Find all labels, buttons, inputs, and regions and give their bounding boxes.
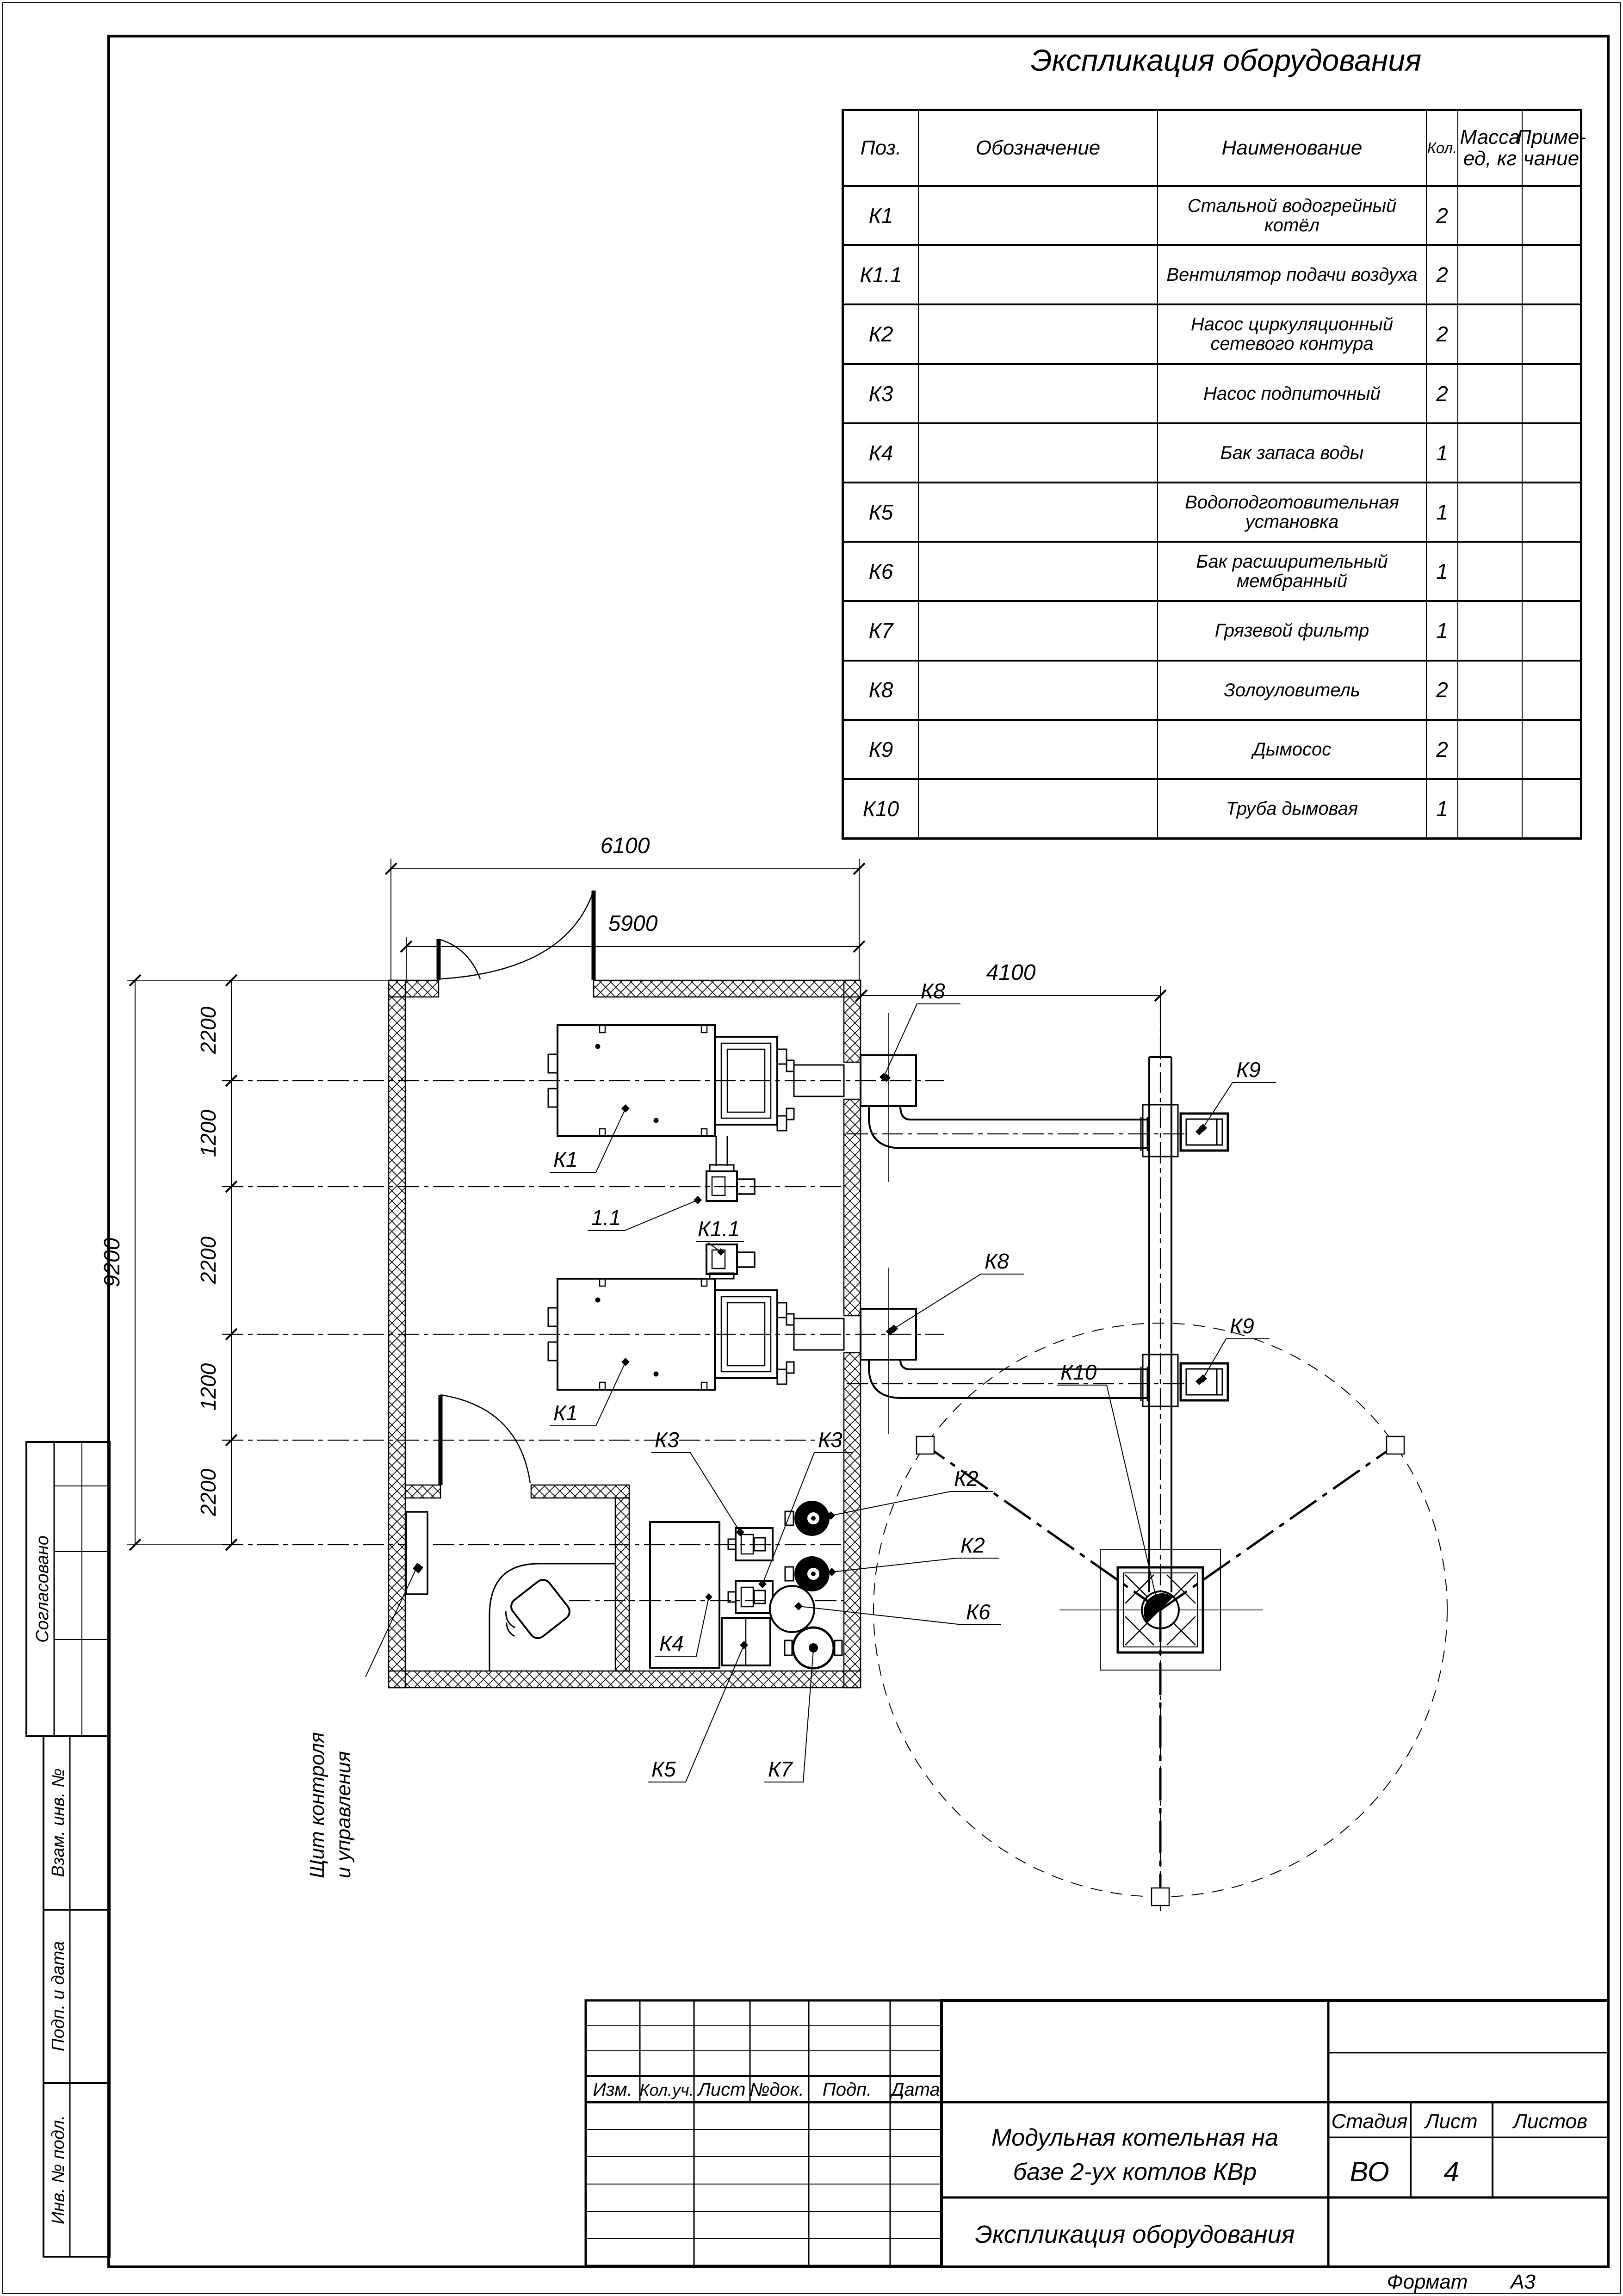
doc-title: Экспликация оборудования bbox=[975, 2221, 1295, 2248]
label-k11: К1.1 bbox=[698, 1217, 740, 1241]
label-k2-upper: К2 bbox=[954, 1467, 979, 1491]
rev-header-izm: Изм. bbox=[593, 2079, 632, 2100]
sheet-value: 4 bbox=[1443, 2156, 1459, 2187]
label-k5: К5 bbox=[651, 1757, 676, 1781]
tank-k6 bbox=[770, 1586, 814, 1632]
label-k8-unit1: К8 bbox=[921, 979, 945, 1003]
pump-k3-lower bbox=[728, 1581, 773, 1613]
door-top bbox=[439, 891, 594, 980]
format-label: Формат bbox=[1387, 2271, 1468, 2293]
label-k1-unit2: К1 bbox=[553, 1401, 578, 1425]
format-value: А3 bbox=[1509, 2271, 1536, 2293]
dim-flue-offset: 4100 bbox=[986, 960, 1036, 985]
floor-plan-drawing: Согласовано Взам. инв. № Подп. и дата Ин… bbox=[0, 0, 1623, 2296]
fan-k11-unit1 bbox=[706, 1136, 755, 1201]
pump-k2-upper bbox=[785, 1501, 830, 1536]
label-k4: К4 bbox=[659, 1631, 684, 1655]
label-11: 1.1 bbox=[591, 1206, 621, 1230]
dim-top-outer: 6100 bbox=[601, 834, 650, 858]
stage-value: ВО bbox=[1350, 2156, 1389, 2187]
label-k2-lower: К2 bbox=[960, 1533, 985, 1557]
smoke-exhauster-k9-unit1 bbox=[1181, 1114, 1228, 1151]
rev-header-list: Лист bbox=[697, 2079, 746, 2100]
label-k10: К10 bbox=[1060, 1360, 1097, 1384]
stamp-inv-label: Инв. № подл. bbox=[49, 2115, 68, 2224]
dim-chain-4: 1200 bbox=[196, 1363, 220, 1411]
flue-duct-upper bbox=[869, 1106, 1149, 1151]
dim-chain-3: 2200 bbox=[196, 1236, 220, 1284]
rev-header-ndok: №док. bbox=[750, 2079, 804, 2100]
stamp-agreed-label: Согласовано bbox=[33, 1535, 52, 1643]
label-leaders bbox=[550, 1004, 1276, 1782]
rev-header-data: Дата bbox=[889, 2079, 940, 2100]
stage-label: Стадия bbox=[1332, 2110, 1408, 2133]
rev-header-podp: Подп. bbox=[823, 2079, 872, 2100]
label-k1-unit1: К1 bbox=[553, 1147, 578, 1171]
label-k3-left: К3 bbox=[655, 1428, 679, 1452]
sheet-label: Лист bbox=[1424, 2110, 1477, 2133]
stamp-podp-label: Подп. и дата bbox=[49, 1941, 68, 2051]
dim-chain-1: 2200 bbox=[196, 1006, 220, 1054]
dim-chain-2: 1200 bbox=[196, 1109, 220, 1157]
water-treatment-k5 bbox=[722, 1618, 770, 1665]
dim-left-total: 9200 bbox=[100, 1238, 124, 1287]
dim-top-inner: 5900 bbox=[608, 911, 658, 936]
filter-k7 bbox=[785, 1628, 842, 1668]
label-k9-unit2: К9 bbox=[1230, 1314, 1254, 1338]
label-k7: К7 bbox=[768, 1757, 793, 1781]
sheets-label: Листов bbox=[1512, 2110, 1587, 2133]
project-name-line2: базе 2-ух котлов КВр bbox=[1013, 2159, 1257, 2185]
smoke-exhauster-k9-unit2 bbox=[1181, 1363, 1228, 1400]
control-panel-annotation-line1: Щит контроля bbox=[306, 1732, 328, 1878]
label-k6: К6 bbox=[966, 1600, 991, 1624]
revision-table bbox=[586, 2000, 942, 2266]
vestibule-fixtures bbox=[489, 1564, 615, 1671]
sheet-frame bbox=[3, 3, 1620, 2293]
fan-k11-unit2 bbox=[706, 1244, 755, 1279]
label-k8-unit2: К8 bbox=[985, 1249, 1009, 1273]
axis-lines bbox=[222, 1002, 1184, 1915]
project-name-line1: Модульная котельная на bbox=[991, 2124, 1278, 2151]
stamp-vzam-label: Взам. инв. № bbox=[49, 1768, 68, 1877]
thin-centerlines bbox=[888, 1013, 1263, 1610]
label-k3-right: К3 bbox=[818, 1428, 842, 1452]
dim-chain-5: 2200 bbox=[196, 1468, 220, 1516]
rev-header-koluch: Кол.уч. bbox=[639, 2080, 694, 2099]
label-k9-unit1: К9 bbox=[1236, 1058, 1261, 1082]
control-panel-annotation-line2: и управления bbox=[332, 1751, 355, 1878]
drawing-sheet: Экспликация оборудования Поз. Обозначени… bbox=[0, 0, 1623, 2296]
